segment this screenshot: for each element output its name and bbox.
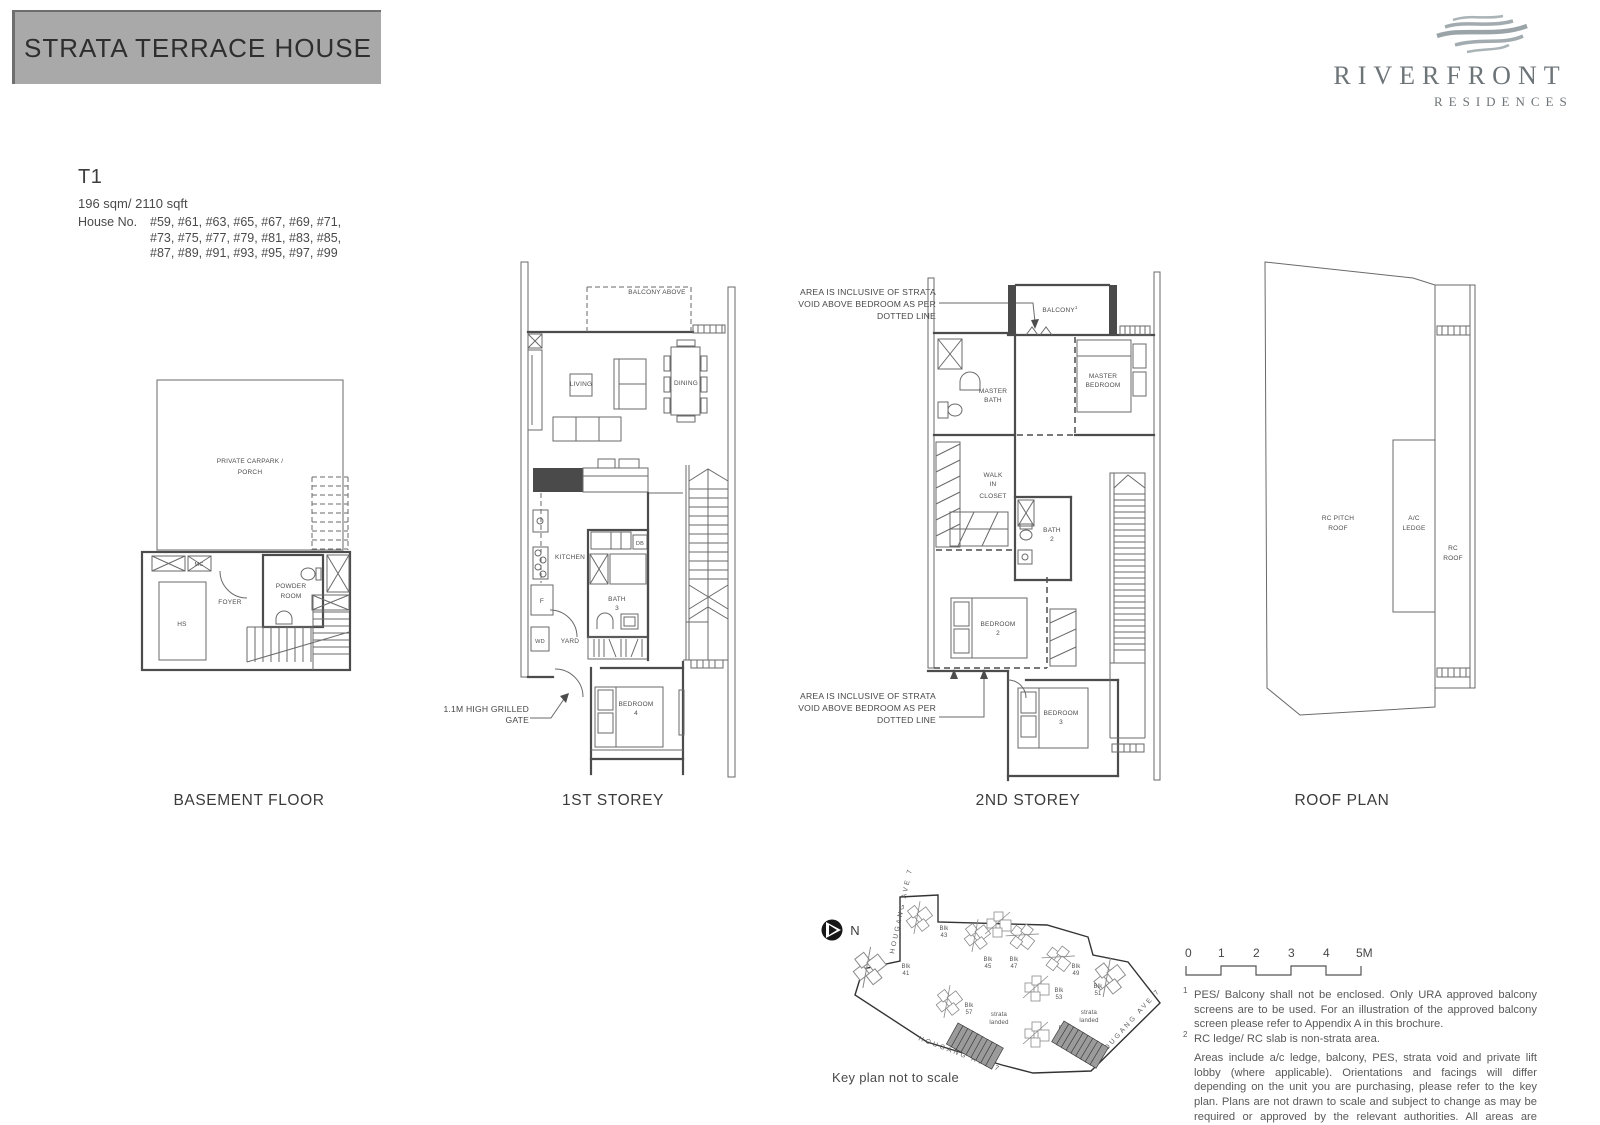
- svg-text:BATH: BATH: [984, 397, 1002, 404]
- scale-tick: 3: [1288, 946, 1295, 960]
- unit-area: 196 sqm/ 2110 sqft: [78, 196, 341, 211]
- note-1-marker: 1: [1183, 986, 1187, 996]
- logo-name: RIVERFRONT: [1318, 61, 1582, 91]
- svg-text:VOID ABOVE BEDROOM AS PER: VOID ABOVE BEDROOM AS PER: [798, 299, 936, 309]
- scale-tick: 0: [1185, 946, 1192, 960]
- rc-pitch-roof-outline: [1265, 262, 1435, 715]
- svg-text:2: 2: [1050, 536, 1054, 543]
- key-plan: N HOUGANG AVE 7 HOUGANG AVE 7 HOUGANG AV…: [806, 866, 1166, 1081]
- svg-text:DOTTED LINE: DOTTED LINE: [877, 311, 936, 321]
- block-label: Blk53: [1055, 988, 1065, 1001]
- block-label: Blk49: [1072, 964, 1082, 977]
- svg-text:PORCH: PORCH: [238, 469, 263, 476]
- brand-logo: RIVERFRONT RESIDENCES: [1318, 12, 1582, 110]
- carpark-area: PRIVATE CARPARK / PORCH: [157, 380, 343, 550]
- svg-text:MC: MC: [194, 562, 203, 568]
- scale-bar-ruler: [1185, 963, 1375, 979]
- fridge-label: F: [540, 598, 544, 605]
- bedroom2: BEDROOM 2: [934, 577, 1076, 668]
- boundary-wall: [1470, 285, 1475, 688]
- bed: [595, 687, 663, 747]
- scale-tick: 2: [1253, 946, 1260, 960]
- rc-roof-label: RC: [1448, 545, 1458, 552]
- strata-void-note-top: ** AREA IS INCLUSIVE OF STRATA VOID ABOV…: [798, 287, 1039, 329]
- unit-code: T1: [78, 166, 341, 189]
- yard-label: YARD: [561, 638, 579, 645]
- wardrobe-hatch: [1050, 609, 1076, 666]
- cabinet: [528, 350, 542, 430]
- scale-tick: 1: [1218, 946, 1225, 960]
- strata-void-note-bottom: ** AREA IS INCLUSIVE OF STRATA VOID ABOV…: [798, 669, 988, 725]
- mc-box: MC: [188, 556, 211, 571]
- keyplan-caption: Key plan not to scale: [832, 1070, 959, 1085]
- left-boundary-wall: [928, 278, 934, 668]
- bedroom3-label: BEDROOM: [1044, 710, 1079, 717]
- disclaimer-paragraph: Areas include a/c ledge, balcony, PES, s…: [1183, 1051, 1537, 1125]
- window-hatch: [693, 325, 725, 333]
- master-bath: MASTER BATH: [934, 333, 1015, 435]
- grilled-gate: 1.1M HIGH GRILLED GATE: [443, 669, 583, 725]
- ac-ledge-label: A/C: [1408, 515, 1420, 522]
- wd-label: WD: [535, 639, 545, 645]
- master-bedroom-label: MASTER: [1089, 373, 1117, 380]
- duct-box: [528, 334, 542, 348]
- basin-icon: [597, 613, 613, 629]
- bed: [1018, 688, 1088, 748]
- svg-text:FOYER: FOYER: [218, 599, 241, 606]
- gate-note: 1.1M HIGH GRILLED: [443, 704, 529, 714]
- note-1-text: PES/ Balcony shall not be enclosed. Only…: [1194, 989, 1537, 1030]
- basin-icon: [276, 611, 292, 624]
- scale-tick: 5M: [1356, 946, 1373, 960]
- master-bath-label: MASTER: [979, 388, 1007, 395]
- bath3: DB BATH 3: [588, 530, 648, 637]
- block-clusters: [846, 901, 1130, 1047]
- legal-notes: 1PES/ Balcony shall not be enclosed. Onl…: [1183, 988, 1537, 1125]
- svg-text:IN: IN: [990, 481, 997, 488]
- strata-void-dashed: [1017, 337, 1075, 435]
- window-hatch: [1437, 668, 1470, 677]
- title-banner: STRATA TERRACE HOUSE: [12, 10, 381, 84]
- svg-text:VOID ABOVE BEDROOM AS PER: VOID ABOVE BEDROOM AS PER: [798, 703, 936, 713]
- second-storey-label: 2ND STOREY: [976, 792, 1081, 810]
- basement-outer-wall: [142, 552, 350, 670]
- house-no-label: House No.: [78, 215, 150, 262]
- svg-text:DOTTED LINE: DOTTED LINE: [877, 715, 936, 725]
- svg-text:GATE: GATE: [505, 715, 529, 725]
- ac-ledge-box: [152, 556, 185, 571]
- dining-area: DINING: [664, 340, 707, 422]
- scale-bar: 0 1 2 3 4 5M: [1185, 946, 1375, 980]
- window-hatch: [1120, 326, 1150, 335]
- scale-tick: 4: [1323, 946, 1330, 960]
- master-bedroom: MASTER BEDROOM: [1075, 340, 1154, 435]
- staircase: [683, 465, 728, 668]
- svg-text:POWDER: POWDER: [276, 583, 307, 590]
- street-label-right: HOUGANG AVE 7: [1098, 987, 1162, 1057]
- bath3-label: BATH: [608, 596, 626, 603]
- house-no-line: #73, #75, #77, #79, #81, #83, #85,: [150, 231, 341, 247]
- toilet-icon: [1020, 530, 1032, 540]
- svg-text:ROOF: ROOF: [1443, 555, 1463, 562]
- basement-floor-label: BASEMENT FLOOR: [173, 792, 324, 810]
- powder-room: POWDER ROOM: [263, 555, 323, 627]
- block-label: Blk57: [965, 1003, 975, 1016]
- toilet-icon: [301, 568, 315, 580]
- svg-text:CLOSET: CLOSET: [979, 493, 1006, 500]
- bath2: BATH 2: [1015, 435, 1071, 580]
- north-arrow-icon: N: [822, 920, 860, 941]
- bedroom4-label: BEDROOM: [619, 701, 654, 708]
- svg-text:ROOM: ROOM: [280, 593, 301, 600]
- svg-text:** AREA IS INCLUSIVE OF STRATA: ** AREA IS INCLUSIVE OF STRATA: [798, 691, 936, 701]
- north-label: N: [850, 923, 860, 938]
- rc-pitch-roof-label: RC PITCH: [1322, 515, 1354, 522]
- right-boundary-wall: [728, 287, 735, 777]
- note-2-text: RC ledge/ RC slab is non-strata area.: [1194, 1033, 1380, 1045]
- svg-text:ROOF: ROOF: [1328, 525, 1348, 532]
- svg-text:HS: HS: [177, 621, 187, 628]
- dining-label: DINING: [674, 380, 698, 387]
- note-2: 2RC ledge/ RC slab is non-strata area.: [1183, 1032, 1537, 1047]
- block-label: Blk51: [1094, 984, 1104, 997]
- living-label: LIVING: [570, 381, 593, 388]
- left-boundary-wall: [521, 262, 528, 677]
- shower-box: [327, 555, 349, 592]
- walk-in-closet: WALK IN CLOSET: [936, 442, 1013, 550]
- svg-text:** AREA IS INCLUSIVE OF STRATA: ** AREA IS INCLUSIVE OF STRATA: [798, 287, 936, 297]
- wd-yard: WD YARD: [531, 610, 579, 651]
- landing-box: [312, 595, 349, 610]
- bath2-label: BATH: [1043, 527, 1061, 534]
- block-label: Blk45: [984, 957, 994, 970]
- right-boundary-wall: [1154, 272, 1160, 780]
- logo-subname: RESIDENCES: [1434, 94, 1582, 110]
- svg-text:4: 4: [634, 710, 638, 717]
- basin-icon: [960, 372, 980, 390]
- balcony-above-label: BALCONY ABOVE: [628, 289, 686, 296]
- strata-landed-label: stratalanded: [989, 1012, 1008, 1026]
- kitchen-area: KITCHEN F: [531, 459, 648, 615]
- svg-text:3: 3: [1059, 719, 1063, 726]
- wic-label: WALK: [984, 472, 1003, 479]
- block-label: Blk41: [902, 964, 912, 977]
- balcony: BALCONY1: [1008, 285, 1154, 335]
- svg-text:2: 2: [996, 630, 1000, 637]
- balcony-label: BALCONY1: [1042, 305, 1077, 314]
- db-label: DB: [636, 541, 644, 547]
- house-no-line: #87, #89, #91, #93, #95, #97, #99: [150, 246, 341, 262]
- svg-text:LEDGE: LEDGE: [1402, 525, 1426, 532]
- logo-wave-icon: [1425, 12, 1535, 54]
- bedroom3: BEDROOM 3: [1008, 680, 1118, 776]
- page-title: STRATA TERRACE HOUSE: [24, 33, 372, 64]
- second-storey-plan: ** AREA IS INCLUSIVE OF STRATA VOID ABOV…: [798, 260, 1168, 785]
- window-hatch: [1437, 326, 1470, 335]
- block-label: Blk43: [940, 926, 950, 939]
- toilet-icon: [948, 404, 962, 416]
- bed: [951, 598, 1027, 658]
- bedroom4: BEDROOM 4: [591, 662, 684, 774]
- first-storey-label: 1ST STOREY: [562, 792, 664, 810]
- vent-grille: [588, 637, 648, 659]
- svg-text:BEDROOM: BEDROOM: [1086, 382, 1121, 389]
- svg-text:3: 3: [615, 605, 619, 612]
- strata-landed-label: stratalanded: [1079, 1010, 1098, 1024]
- strata-landed-row: [1052, 1021, 1109, 1068]
- stair-void-ladder: [1110, 473, 1145, 752]
- first-storey-plan: BALCONY ABOVE LIVING DINING: [443, 247, 743, 782]
- note-1: 1PES/ Balcony shall not be enclosed. Onl…: [1183, 988, 1537, 1032]
- sofa: [553, 359, 646, 441]
- basement-floor-plan: PRIVATE CARPARK / PORCH MC HS FOYER: [128, 350, 378, 695]
- bedroom2-label: BEDROOM: [981, 621, 1016, 628]
- roof-plan: RC PITCH ROOF A/C LEDGE RC ROOF: [1228, 248, 1478, 743]
- roof-plan-label: ROOF PLAN: [1295, 792, 1390, 810]
- unit-info: T1 196 sqm/ 2110 sqft House No. #59, #61…: [78, 166, 341, 262]
- carpark-label: PRIVATE CARPARK /: [217, 458, 284, 465]
- living-area: LIVING: [553, 359, 646, 441]
- hs-room: HS: [159, 582, 206, 660]
- note-2-marker: 2: [1183, 1030, 1187, 1040]
- house-no-list: #59, #61, #63, #65, #67, #69, #71, #73, …: [150, 215, 341, 262]
- brochure-page: STRATA TERRACE HOUSE RIVERFRONT RESIDENC…: [0, 0, 1600, 1125]
- block-label: Blk47: [1010, 957, 1020, 970]
- house-no-line: #59, #61, #63, #65, #67, #69, #71,: [150, 215, 341, 231]
- foyer: FOYER: [218, 571, 247, 606]
- kitchen-label: KITCHEN: [555, 554, 585, 561]
